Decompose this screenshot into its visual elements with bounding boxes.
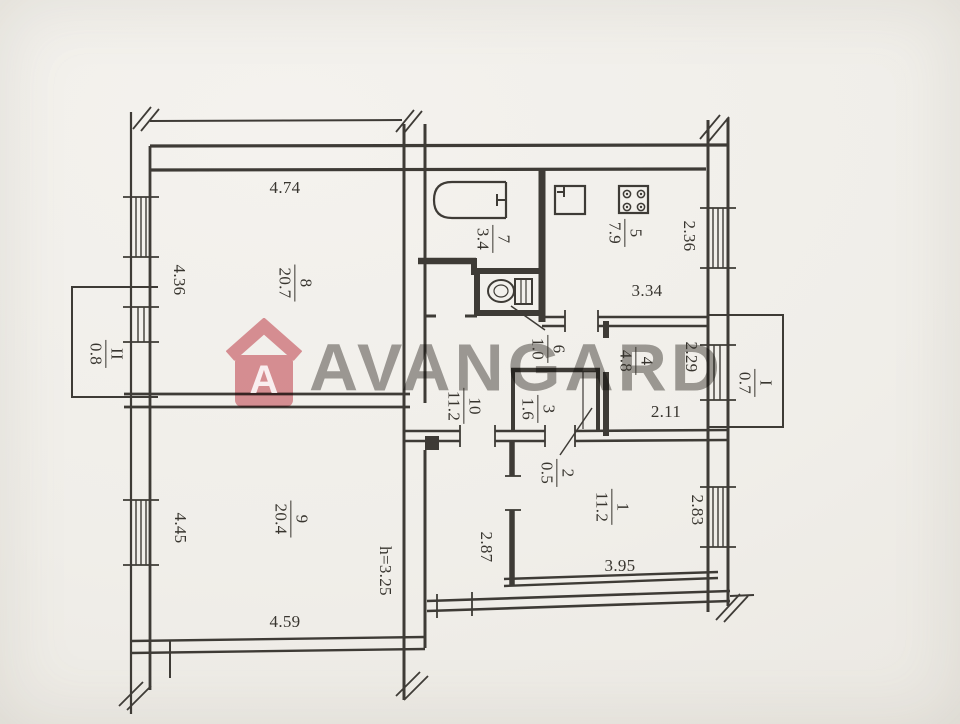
room-3-label: 3 1.6 <box>519 395 558 423</box>
ceiling-height-note: h=3.25 <box>376 546 394 596</box>
balcony-2-label: II 0.8 <box>87 340 126 368</box>
room-1-label: 1 11.2 <box>593 489 632 525</box>
dim-room8-height: 4.36 <box>170 265 188 296</box>
dim-room4-width: 2.11 <box>651 403 681 421</box>
room-10-label: 10 11.2 <box>445 388 484 424</box>
dim-corridor: 2.87 <box>477 532 495 563</box>
room-9-label: 9 20.4 <box>272 501 311 538</box>
room-6-label: 6 1.0 <box>529 335 568 363</box>
room-8-label: 8 20.7 <box>276 265 315 302</box>
dim-room1-width: 3.95 <box>605 557 636 575</box>
labels-layer: 4.74 3.34 2.11 4.59 3.95 4.36 4.45 h=3.2… <box>0 0 960 724</box>
room-2-label: 2 0.5 <box>538 459 577 487</box>
dim-room9-height: 4.45 <box>171 513 189 544</box>
floor-plan-page: A AVANGARD 4.74 3.34 2.11 4.59 3.95 4.36… <box>0 0 960 724</box>
room-5-label: 5 7.9 <box>606 219 645 247</box>
dim-top-room8: 4.74 <box>270 179 301 197</box>
room-7-label: 7 3.4 <box>474 225 513 253</box>
balcony-1-label: I 0.7 <box>736 369 775 397</box>
dim-room4-height: 2.29 <box>682 342 700 373</box>
dim-kitchen-width: 3.34 <box>632 282 663 300</box>
dim-room1-height: 2.83 <box>688 495 706 526</box>
dim-kitchen-height: 2.36 <box>680 221 698 252</box>
dim-room9-width: 4.59 <box>270 613 301 631</box>
room-4-label: 4 4.8 <box>617 347 656 375</box>
